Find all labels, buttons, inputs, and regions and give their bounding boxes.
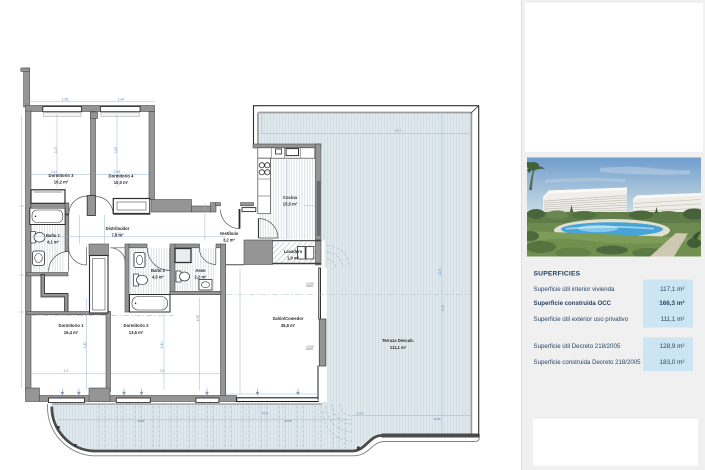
- svg-text:4,5 m²: 4,5 m²: [152, 275, 165, 280]
- svg-text:Salón/Comedor: Salón/Comedor: [273, 316, 304, 321]
- svg-text:14,1: 14,1: [395, 129, 402, 133]
- svg-text:3,2 m²: 3,2 m²: [223, 238, 236, 243]
- svg-text:3,07: 3,07: [54, 147, 58, 154]
- svg-text:22,6: 22,6: [438, 269, 442, 276]
- svg-text:Aseo: Aseo: [195, 268, 206, 273]
- svg-text:2,44: 2,44: [118, 98, 125, 102]
- svg-text:2,96: 2,96: [114, 170, 121, 174]
- svg-text:Dormitorio 1: Dormitorio 1: [59, 323, 85, 328]
- svg-text:10,9: 10,9: [357, 412, 364, 416]
- svg-text:Lavadero: Lavadero: [284, 249, 303, 254]
- svg-text:3,40: 3,40: [160, 342, 164, 349]
- svg-text:±0,00: ±0,00: [285, 419, 292, 423]
- svg-text:Baño 1: Baño 1: [46, 233, 61, 238]
- svg-text:Baño 2: Baño 2: [151, 268, 166, 273]
- svg-text:Vestíbulo: Vestíbulo: [220, 231, 239, 236]
- svg-text:3,5: 3,5: [160, 369, 165, 373]
- svg-text:111,1 m²: 111,1 m²: [661, 316, 685, 323]
- svg-text:2,44: 2,44: [51, 170, 58, 174]
- svg-text:166,3 m²: 166,3 m²: [659, 300, 684, 307]
- svg-text:Terraza Descub.: Terraza Descub.: [382, 338, 414, 343]
- svg-text:4,05: 4,05: [262, 412, 269, 416]
- svg-text:Cocina: Cocina: [283, 195, 298, 200]
- svg-text:4,1 m²: 4,1 m²: [47, 240, 60, 245]
- svg-text:3,53: 3,53: [114, 147, 118, 154]
- svg-text:Superficie útil interior vivie: Superficie útil interior vivienda: [534, 286, 616, 293]
- svg-text:SUPERFICIES: SUPERFICIES: [534, 271, 581, 278]
- svg-text:15,5 m²: 15,5 m²: [283, 202, 298, 207]
- svg-text:4,95: 4,95: [196, 315, 200, 322]
- svg-text:2,96: 2,96: [62, 98, 69, 102]
- svg-text:Superficie construida OCC: Superficie construida OCC: [534, 300, 612, 307]
- svg-text:Dormitorio 4: Dormitorio 4: [109, 174, 135, 179]
- svg-text:Superficie útil exterior uso p: Superficie útil exterior uso privativo: [534, 316, 629, 323]
- svg-text:183,0 m²: 183,0 m²: [660, 359, 685, 366]
- svg-text:1,9 m²: 1,9 m²: [287, 256, 300, 261]
- svg-text:4,05: 4,05: [441, 305, 445, 312]
- svg-text:Superficie construida Decreto: Superficie construida Decreto 218/2005: [534, 359, 642, 366]
- svg-text:128,9 m²: 128,9 m²: [660, 343, 685, 350]
- svg-text:Superficie útil Decreto 218/20: Superficie útil Decreto 218/2005: [534, 343, 621, 350]
- svg-text:Distribuidor: Distribuidor: [106, 226, 130, 231]
- svg-text:117,1 m²: 117,1 m²: [660, 286, 684, 293]
- svg-text:10,2 m²: 10,2 m²: [54, 180, 69, 185]
- svg-text:±0,00: ±0,00: [434, 417, 441, 421]
- svg-text:16,4 m²: 16,4 m²: [64, 330, 79, 335]
- svg-text:3,3: 3,3: [64, 369, 69, 373]
- svg-text:Dormitorio 2: Dormitorio 2: [124, 323, 150, 328]
- svg-text:+0,00: +0,00: [306, 282, 314, 286]
- svg-text:13,6 m²: 13,6 m²: [129, 330, 144, 335]
- svg-text:+0,00: +0,00: [306, 345, 314, 349]
- svg-text:3,40: 3,40: [83, 342, 87, 349]
- svg-text:2,2 m²: 2,2 m²: [194, 275, 207, 280]
- svg-text:111,1 m²: 111,1 m²: [390, 345, 407, 350]
- svg-text:35,8 m²: 35,8 m²: [281, 323, 296, 328]
- svg-text:6,22: 6,22: [115, 232, 122, 236]
- svg-text:10,0 m²: 10,0 m²: [114, 180, 129, 185]
- svg-text:±0,00: ±0,00: [138, 419, 145, 423]
